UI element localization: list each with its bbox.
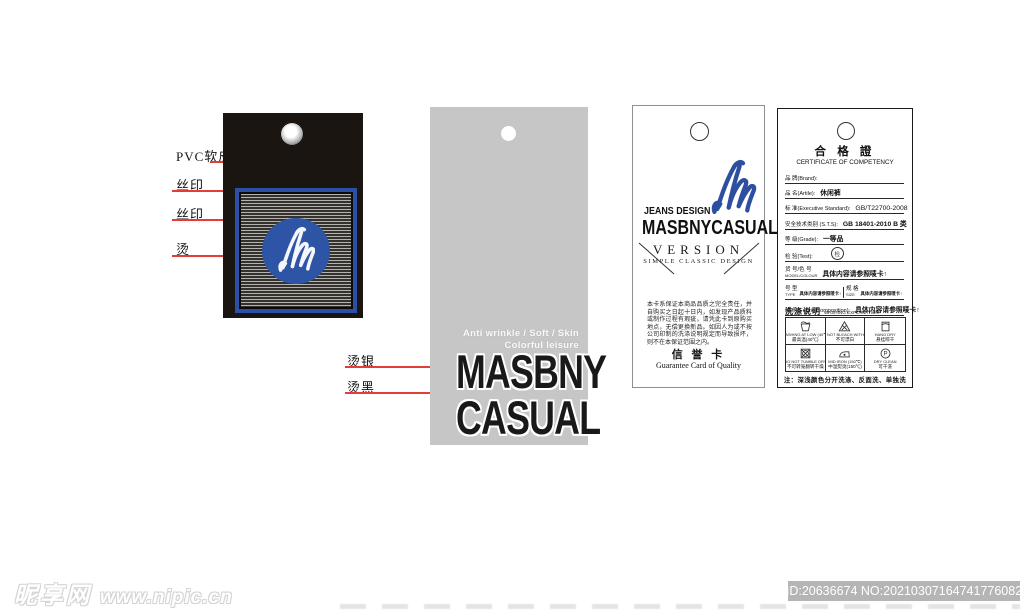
field-value: 具体内容请参照唛卡↑ (800, 291, 842, 297)
dry-clean-icon: P (879, 347, 892, 360)
type-cell: 号 型 TYPE 具体内容请参照唛卡↑ (785, 287, 844, 298)
field-value: 具体内容请参照唛卡↑ (822, 268, 887, 278)
wash-cell: DO NOT TUMBLE DRY 不可转笼翻转干燥 (786, 345, 826, 371)
brand-word-masbny: MASBNY (456, 350, 606, 394)
image-id-badge: ID:20636674 NO:20210307164741776082 (788, 581, 1020, 601)
field-row-model-colour: 货 号/色 号 MODEL/COLOUR 具体内容请参照唛卡↑ (785, 262, 904, 280)
washing-symbol-grid: WASHING AT LOW (40℃) 最高温(40℃) DO NOT BLE… (785, 317, 906, 372)
field-value: 休闲裤 (820, 187, 840, 197)
field-row-test: 检 验(Test): 检 (785, 245, 904, 262)
certificate-fields: 品 牌(Brand): 品 名(Artile): 休闲裤 标 准(Executi… (785, 170, 904, 316)
guarantee-card-tag: JEANS DESIGN MASBNYCASUAL VERSION SIMPLE… (632, 105, 765, 388)
field-value: GB 18401-2010 B 类 (843, 218, 907, 228)
site-url: www.nipic.cn (100, 587, 233, 609)
mid-iron-icon (838, 347, 851, 360)
brand-monogram-icon (709, 159, 757, 219)
metal-grommet-icon (280, 122, 304, 146)
field-value: 一等品 (823, 233, 843, 243)
washing-title: 洗涤说明 (785, 306, 821, 317)
cropped-watermark-strip (340, 604, 1020, 609)
brand-wordmark: MASBNYCASUAL (642, 216, 778, 240)
size-cell: 规 格 SIZE 具体内容请参照唛卡↑ (844, 287, 904, 298)
wash-cell: DO NOT BLEACH WITH CL 不可漂白 (826, 318, 866, 345)
wash-cell: P DRY CLEAN 可干洗 (865, 345, 905, 371)
washing-note: 注：深浅颜色分开洗涤、反面洗、单独洗 (778, 375, 912, 384)
design-proof-canvas: PVC软皮 丝印 丝印 烫 (0, 0, 1024, 610)
wash-tub-40-icon (799, 320, 812, 333)
field-label: 检 验(Test): (785, 252, 813, 260)
punch-hole-icon (837, 122, 855, 140)
wash-cell: HANG DRY 悬挂晾干 (865, 318, 905, 345)
card-subtitle: Guarantee Card of Quality (633, 361, 764, 370)
pvc-emblem-patch (235, 188, 357, 313)
card-title: 信 誉 卡 (633, 346, 764, 362)
site-watermark: 昵享网 www.nipic.cn (14, 576, 233, 610)
guarantee-paragraph: 本卡系保证本商品品质之完全责任，并自购买之日起十日内，如发现产品质料或制作过程有… (647, 302, 752, 348)
field-label: 安全技术类别 (S.T.S): (785, 220, 838, 228)
certificate-tag: 合 格 證 CERTIFICATE OF COMPETENCY 品 牌(Bran… (777, 108, 913, 388)
field-label: 标 准(Executive Standard): (785, 204, 850, 212)
brand-monogram-icon (277, 226, 315, 276)
brand-word-casual: CASUAL (456, 396, 600, 440)
do-not-tumble-dry-icon (799, 347, 812, 360)
ribbon-lines-icon (636, 240, 762, 278)
certificate-subtitle: CERTIFICATE OF COMPETENCY (778, 159, 912, 166)
svg-text:P: P (883, 351, 887, 357)
gray-brand-hang-tag: Anti wrinkle / Soft / Skin Colorful leis… (430, 107, 588, 445)
field-label: 等 级(Grade): (785, 235, 818, 243)
field-label: 品 名(Artile): (785, 189, 815, 197)
logo-circle (262, 218, 330, 284)
field-row-type-size: 号 型 TYPE 具体内容请参照唛卡↑ 规 格 SIZE 具体内容请参照唛卡↑ (785, 280, 904, 300)
site-name: 昵享网 (14, 576, 92, 610)
field-value: GB/T22700-2008 (855, 205, 907, 212)
inspection-stamp-icon: 检 (831, 247, 844, 260)
wash-cell: MID IRON (150℃) 中温熨烫(150℃) (826, 345, 866, 371)
field-row-safety: 安全技术类别 (S.T.S): GB 18401-2010 B 类 (785, 214, 904, 230)
do-not-bleach-icon (838, 320, 851, 333)
field-label: 规 格 SIZE (846, 287, 859, 297)
field-row-brand: 品 牌(Brand): (785, 170, 904, 184)
black-pvc-hang-tag (223, 113, 363, 318)
hang-dry-icon (879, 320, 892, 333)
field-row-standard: 标 准(Executive Standard): GB/T22700-2008 (785, 199, 904, 214)
field-value: 具体内容请参照唛卡↑ (861, 291, 903, 297)
washing-subtitle: WASHING EXPLANATION (824, 310, 879, 315)
field-row-grade: 等 级(Grade): 一等品 (785, 230, 904, 245)
field-label: 品 牌(Brand): (785, 174, 817, 182)
punch-hole-icon (501, 126, 516, 141)
punch-hole-icon (690, 122, 709, 141)
tagline-line1: Anti wrinkle / Soft / Skin (463, 328, 579, 339)
field-label: 货 号/色 号 MODEL/COLOUR (785, 268, 817, 278)
field-label: 号 型 TYPE (785, 287, 798, 297)
washing-header: 洗涤说明 WASHING EXPLANATION (785, 306, 879, 317)
silkprint-stripes (241, 194, 351, 307)
certificate-title: 合 格 證 (778, 143, 912, 159)
field-row-name: 品 名(Artile): 休闲裤 (785, 184, 904, 199)
wash-cell: WASHING AT LOW (40℃) 最高温(40℃) (786, 318, 826, 345)
